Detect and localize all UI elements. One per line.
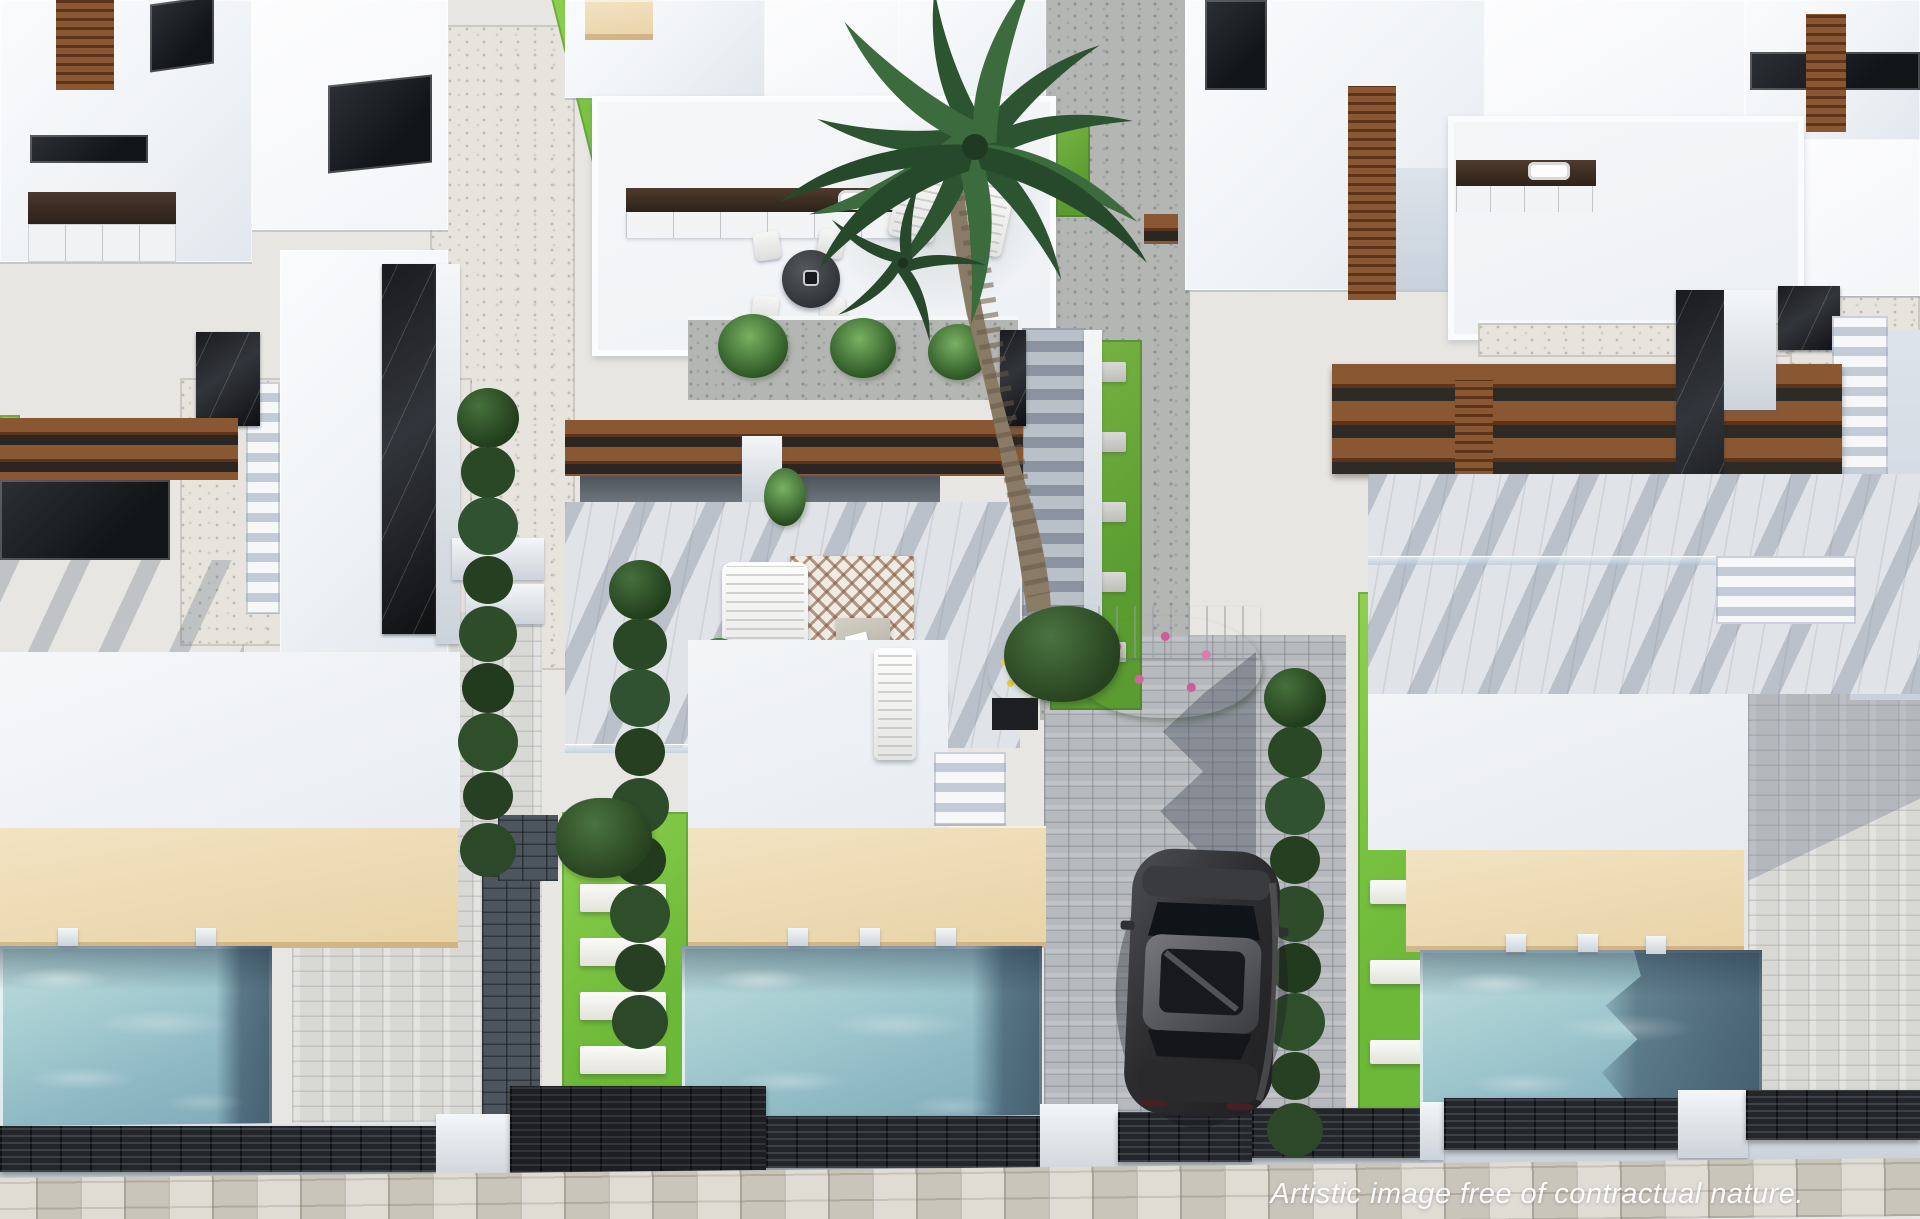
stepping-stone	[580, 938, 666, 966]
left-villa-kitchen-window	[30, 135, 148, 163]
left-villa-pergola	[0, 418, 238, 480]
right-villa-pool-terrace	[1368, 694, 1748, 850]
fence-pier	[1678, 1090, 1748, 1158]
left-villa-marble-planter	[382, 264, 438, 634]
pool-deep-edge	[972, 946, 1042, 1134]
stepping-stone	[580, 1046, 666, 1074]
right-solarium-sink	[1528, 162, 1570, 180]
right-solarium-kitchen-counter	[1456, 160, 1596, 186]
deck-steps	[934, 752, 1006, 826]
left-villa-kitchen-cabinets	[28, 224, 176, 262]
pool-light-box	[936, 928, 956, 946]
left-villa-kitchen-counter	[28, 192, 176, 224]
parked-car	[1106, 836, 1298, 1134]
left-villa-terrace-glazing	[0, 480, 170, 560]
right-solarium-kitchen-cabinets	[1456, 186, 1596, 212]
left-villa-marble-block	[196, 332, 260, 426]
right-villa-wood-cladding	[1348, 86, 1396, 300]
left-villa-skylight	[150, 0, 214, 72]
aerial-villa-render: Artistic image free of contractual natur…	[0, 0, 1920, 1219]
boundary-fence-panel	[1444, 1098, 1680, 1150]
left-villa-window	[328, 75, 432, 174]
palm-tree	[745, 0, 1205, 715]
watermark-text: Artistic image free of contractual natur…	[1270, 1178, 1804, 1211]
left-villa-lower-terrace	[0, 652, 460, 828]
boundary-fence-panel	[1746, 1090, 1920, 1140]
left-patio-steps	[498, 815, 558, 881]
car-taillight-right	[1227, 1103, 1253, 1110]
right-villa-wood-cladding-top	[1806, 14, 1846, 132]
left-villa-pool	[0, 946, 272, 1130]
stepping-stone	[580, 884, 666, 912]
pool-light-box	[788, 928, 808, 946]
left-villa-pergola-shadow	[0, 560, 244, 656]
car-rear-window	[1147, 1030, 1252, 1061]
rear-roof-deck-sliver	[585, 0, 653, 40]
boundary-fence-panel	[0, 1126, 436, 1172]
pool-reflection-shadow	[682, 946, 1042, 994]
boundary-fence-panel	[766, 1116, 1042, 1168]
pool-deep-edge	[216, 946, 272, 1130]
car-hood	[1142, 865, 1271, 901]
pool-light-box	[58, 928, 78, 946]
right-terrace-glass-balustrade	[1368, 556, 1748, 565]
pool-light-box	[1646, 936, 1666, 954]
right-villa-white-column	[1724, 290, 1776, 410]
pool-light-box	[196, 928, 216, 946]
car-taillight-left	[1141, 1099, 1167, 1106]
alley-shrub-row	[444, 372, 532, 672]
left-villa-wood-cladding	[56, 0, 114, 90]
pool-light-box	[1506, 934, 1526, 952]
car-trunk	[1137, 1059, 1259, 1104]
garden-hedge	[610, 544, 670, 758]
pool-light-box	[860, 928, 880, 946]
right-villa-block-b	[1485, 0, 1745, 120]
right-villa-marble-block	[1778, 286, 1840, 350]
right-villa-door-slot	[1205, 0, 1267, 90]
entrance-gate-panel	[510, 1086, 766, 1180]
pool-reflection-shadow	[0, 946, 272, 990]
stepping-stone	[580, 992, 666, 1020]
right-villa-sun-deck	[1406, 846, 1744, 952]
fence-pier	[436, 1114, 510, 1182]
pool-reflection-shadow	[1420, 950, 1762, 996]
pool-light-box	[1578, 934, 1598, 952]
right-villa-lower-steps	[1716, 556, 1856, 624]
fence-pier	[1420, 1102, 1444, 1160]
car-mirror-left	[1120, 920, 1134, 930]
